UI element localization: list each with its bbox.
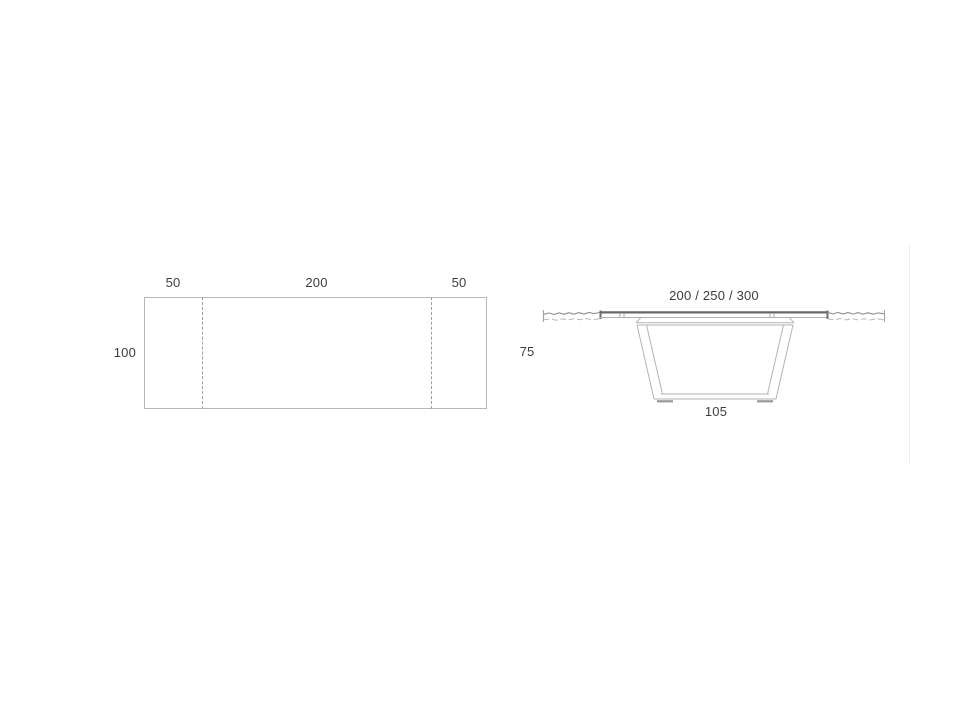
tabletop-outline	[144, 297, 487, 409]
side-view-drawing	[505, 300, 905, 415]
dim-depth: 100	[92, 346, 136, 360]
furniture-dimension-diagram: 50 200 50 100	[0, 0, 970, 728]
tabletop-left-leaf	[544, 311, 601, 322]
tabletop-main	[600, 311, 828, 320]
page-divider-line	[909, 245, 910, 463]
apron	[636, 318, 794, 323]
dim-right-leaf-width: 50	[431, 276, 487, 290]
tabletop-right-leaf	[828, 311, 885, 322]
dim-left-leaf-width: 50	[144, 276, 202, 290]
hinge-marks	[620, 313, 774, 317]
dim-height: 75	[512, 345, 542, 359]
dim-center-width: 200	[202, 276, 431, 290]
dim-length-options: 200 / 250 / 300	[598, 289, 830, 303]
leaf-divider-left	[202, 297, 203, 409]
pedestal	[637, 325, 793, 399]
leaf-divider-right	[431, 297, 432, 409]
dim-base-width: 105	[686, 405, 746, 419]
